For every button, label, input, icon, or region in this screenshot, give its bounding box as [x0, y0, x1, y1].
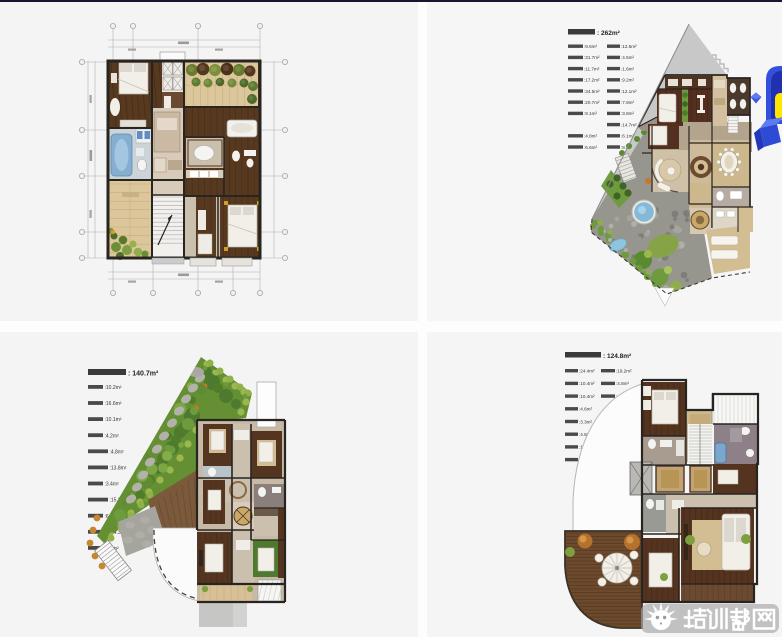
svg-text::13.8m²: :13.8m² — [110, 466, 127, 472]
svg-text::9.6m²: :9.6m² — [584, 44, 597, 49]
svg-text::11.7m²: :11.7m² — [584, 66, 600, 71]
svg-text::3.3m²: :3.3m² — [579, 419, 592, 424]
svg-text::3.8m²: :3.8m² — [621, 111, 634, 116]
svg-text::4.8m²: :4.8m² — [616, 381, 629, 386]
svg-text::4.8m²: :4.8m² — [584, 134, 597, 139]
svg-text::4.8m²: :4.8m² — [110, 449, 125, 455]
svg-text::34.5m²: :34.5m² — [584, 89, 600, 94]
svg-text:: 124.8m²: : 124.8m² — [603, 353, 632, 360]
svg-text::10.4m²: :10.4m² — [579, 394, 595, 399]
svg-text::17.2m²: :17.2m² — [584, 78, 600, 83]
svg-text::4.6m²: :4.6m² — [579, 407, 592, 412]
svg-text:: 262m²: : 262m² — [597, 30, 621, 37]
svg-text::31.7m²: :31.7m² — [584, 55, 600, 60]
svg-text::10.1m²: :10.1m² — [105, 417, 122, 423]
svg-text:: 140.7m²: : 140.7m² — [128, 371, 159, 378]
svg-text::4.5m²: :4.5m² — [621, 55, 634, 60]
svg-text::4.2m²: :4.2m² — [105, 433, 120, 439]
svg-text::19.2m²: :19.2m² — [616, 369, 632, 374]
svg-text::3.4m²: :3.4m² — [105, 482, 120, 488]
svg-text::16.6m²: :16.6m² — [105, 401, 122, 407]
svg-text::24.4m²: :24.4m² — [579, 369, 595, 374]
svg-text::20.7m²: :20.7m² — [584, 100, 600, 105]
svg-text::7.9m²: :7.9m² — [621, 100, 634, 105]
svg-text::14.7m²: :14.7m² — [621, 122, 637, 127]
svg-text::10.4m²: :10.4m² — [579, 381, 595, 386]
svg-text::6.6m²: :6.6m² — [584, 145, 597, 150]
svg-text::10.2m²: :10.2m² — [105, 385, 122, 391]
svg-text::12.1m²: :12.1m² — [621, 89, 637, 94]
svg-text::9.2m²: :9.2m² — [621, 78, 634, 83]
svg-text::1.6m²: :1.6m² — [621, 66, 634, 71]
svg-text::12.5m²: :12.5m² — [621, 44, 637, 49]
svg-text::9.1m²: :9.1m² — [584, 111, 597, 116]
